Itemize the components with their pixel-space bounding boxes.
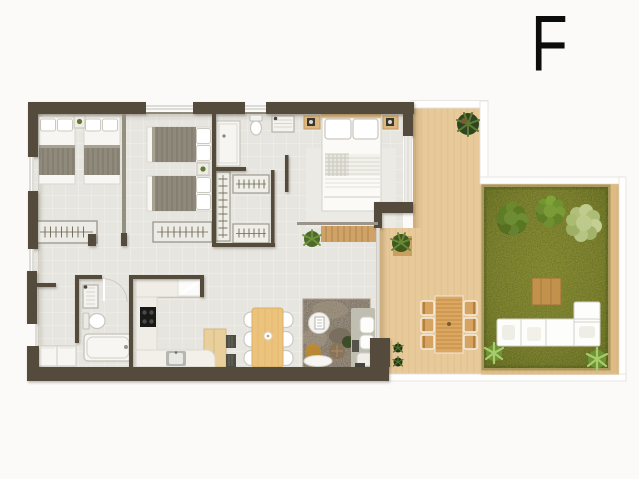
svg-text:F: F <box>531 0 568 87</box>
